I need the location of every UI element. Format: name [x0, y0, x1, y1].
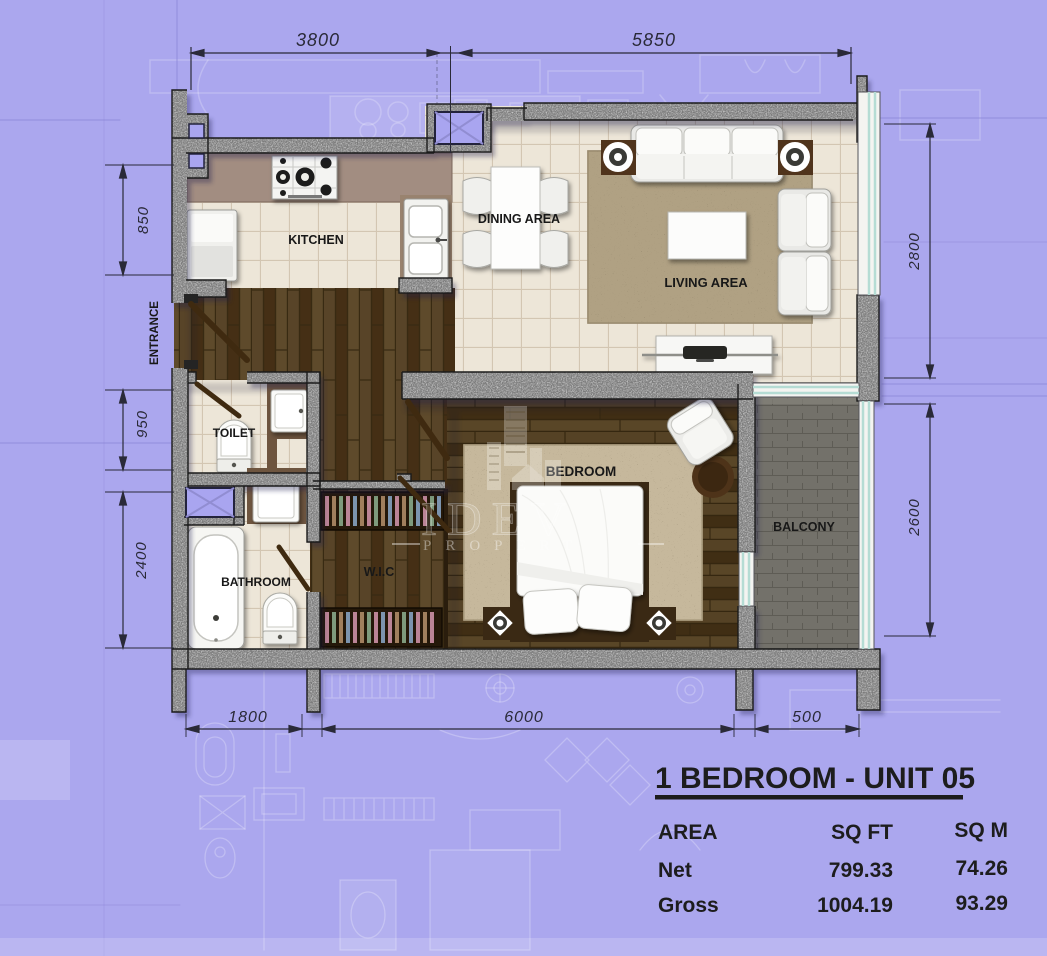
- svg-text:DINING AREA: DINING AREA: [478, 212, 560, 226]
- svg-text:Gross: Gross: [658, 894, 719, 917]
- svg-text:AREA: AREA: [658, 821, 718, 844]
- svg-text:Net: Net: [658, 859, 692, 882]
- svg-text:500: 500: [792, 709, 822, 726]
- svg-text:5850: 5850: [632, 30, 676, 50]
- svg-text:74.26: 74.26: [955, 857, 1008, 880]
- svg-text:850: 850: [135, 206, 152, 234]
- svg-text:KITCHEN: KITCHEN: [288, 233, 344, 247]
- svg-text:2600: 2600: [906, 498, 923, 536]
- svg-text:1004.19: 1004.19: [817, 894, 893, 917]
- svg-text:93.29: 93.29: [955, 892, 1008, 915]
- svg-text:TOILET: TOILET: [213, 426, 256, 440]
- svg-text:SQ M: SQ M: [954, 819, 1008, 842]
- svg-text:BALCONY: BALCONY: [773, 520, 835, 534]
- svg-text:PROPERT: PROPERT: [423, 538, 586, 554]
- svg-text:6000: 6000: [504, 709, 544, 726]
- svg-text:2400: 2400: [133, 541, 150, 579]
- svg-text:799.33: 799.33: [829, 859, 893, 882]
- svg-text:W.I.C: W.I.C: [364, 565, 395, 579]
- svg-text:ENTRANCE: ENTRANCE: [149, 301, 161, 365]
- svg-text:3800: 3800: [296, 30, 340, 50]
- svg-text:2800: 2800: [906, 232, 923, 270]
- svg-text:950: 950: [134, 410, 151, 438]
- svg-text:1 BEDROOM - UNIT 05: 1 BEDROOM - UNIT 05: [655, 762, 975, 795]
- svg-text:1800: 1800: [228, 709, 268, 726]
- svg-text:BATHROOM: BATHROOM: [221, 575, 291, 589]
- svg-text:SQ FT: SQ FT: [831, 821, 893, 844]
- svg-text:LIVING AREA: LIVING AREA: [664, 275, 748, 290]
